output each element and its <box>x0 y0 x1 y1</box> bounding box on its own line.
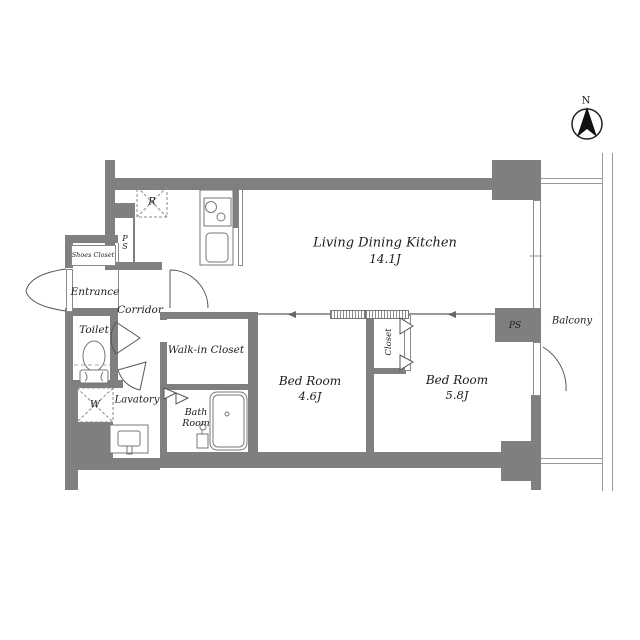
toilet-fixture <box>80 341 108 383</box>
floor-plan: Living Dining Kitchen 14.1J Bed Room 4.6… <box>0 0 640 640</box>
room-area-bedroom1: 4.6J <box>299 389 322 403</box>
entrance-door-arc <box>26 269 66 311</box>
compass-north-label: N <box>582 96 591 107</box>
room-label-toilet: Toilet <box>79 324 109 336</box>
door-arc <box>170 270 208 308</box>
slide-arrow-icon <box>448 311 456 318</box>
compass-icon <box>572 107 602 139</box>
room-label-entrance: Entrance <box>71 286 120 298</box>
door-arc <box>543 347 566 391</box>
room-area-ldk: 14.1J <box>369 252 401 266</box>
room-label-closet: Closet <box>384 328 394 355</box>
bath-line2: Room <box>182 418 210 429</box>
room-label-corridor: Corridor <box>117 304 163 316</box>
door-arc <box>111 322 140 354</box>
room-label-bedroom2: Bed Room <box>426 373 488 387</box>
room-label-ldk: Living Dining Kitchen <box>313 236 457 251</box>
room-label-walk-in-closet: Walk-in Closet <box>168 344 244 356</box>
pipe-space-kitchen-label: PS <box>121 234 130 250</box>
room-label-balcony: Balcony <box>552 316 592 327</box>
vanity-fixture <box>110 425 148 454</box>
kitchen-counter <box>200 190 233 265</box>
fixtures-layer <box>0 0 640 640</box>
slide-arrow-icon <box>288 311 296 318</box>
pipe-space-balcony-label: PS <box>509 321 521 331</box>
room-label-bedroom1: Bed Room <box>279 374 341 388</box>
room-label-bath: Bath Room <box>182 407 210 429</box>
room-area-bedroom2: 5.8J <box>446 388 469 402</box>
door-arc <box>118 362 146 390</box>
bathtub-fixture <box>210 392 247 450</box>
room-label-shoes-closet: Shoes Closet <box>72 251 115 259</box>
bath-line1: Bath <box>185 407 208 418</box>
washer-label: W <box>90 400 100 411</box>
refrigerator-label: R <box>148 197 156 208</box>
folding-door-icon <box>164 388 188 404</box>
bifold-door-icon <box>400 318 413 370</box>
room-label-lavatory: Lavatory <box>115 395 160 406</box>
